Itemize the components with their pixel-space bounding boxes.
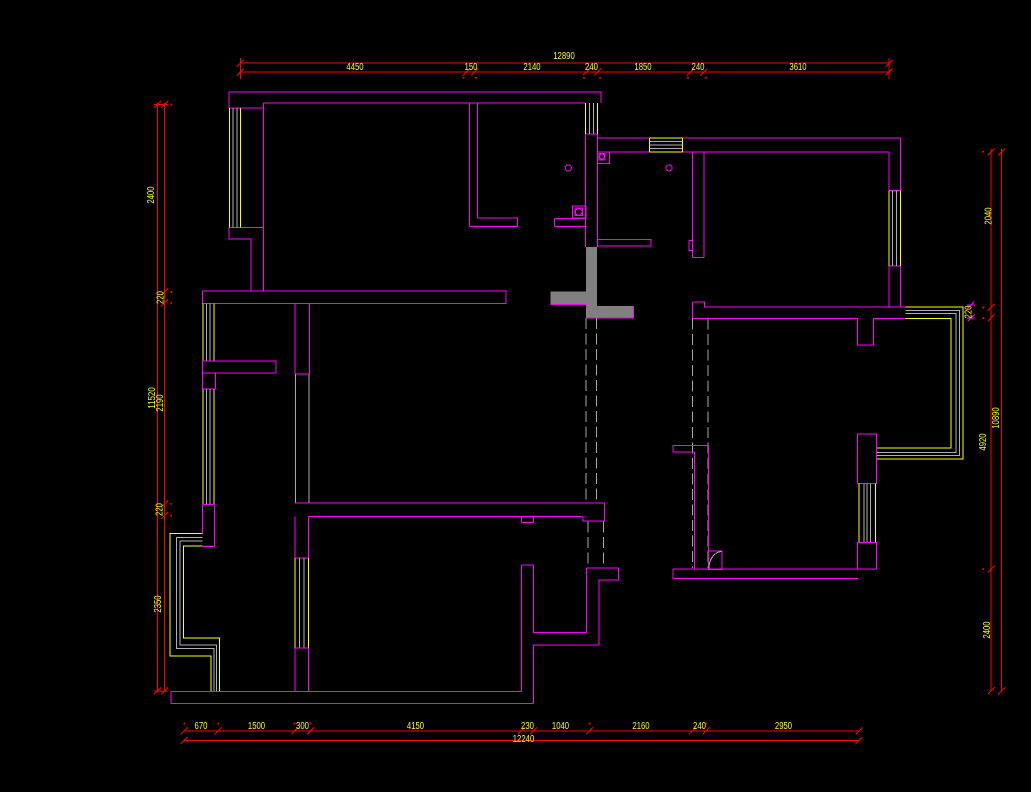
svg-text:150: 150 (465, 62, 478, 73)
svg-text:2950: 2950 (775, 721, 793, 732)
svg-text:2140: 2140 (523, 62, 541, 73)
svg-text:1850: 1850 (634, 62, 652, 73)
svg-text:2190: 2190 (155, 394, 166, 412)
svg-text:220: 220 (155, 503, 166, 516)
svg-text:4450: 4450 (346, 62, 364, 73)
svg-text:2040: 2040 (984, 207, 995, 225)
svg-text:220: 220 (156, 291, 167, 304)
svg-text:2350: 2350 (153, 595, 164, 613)
svg-text:300: 300 (296, 721, 309, 732)
svg-text:240: 240 (692, 62, 705, 73)
svg-text:240: 240 (693, 721, 706, 732)
svg-text:12240: 12240 (513, 734, 535, 745)
svg-text:4920: 4920 (978, 433, 989, 451)
svg-text:240: 240 (585, 62, 598, 73)
svg-text:1040: 1040 (552, 721, 570, 732)
svg-text:4150: 4150 (407, 721, 425, 732)
svg-text:2160: 2160 (632, 721, 650, 732)
svg-text:2400: 2400 (982, 621, 993, 639)
svg-text:2400: 2400 (146, 186, 157, 204)
svg-text:230: 230 (521, 721, 534, 732)
svg-text:3610: 3610 (789, 62, 807, 73)
svg-text:670: 670 (195, 721, 208, 732)
svg-text:220: 220 (964, 305, 975, 318)
svg-text:10890: 10890 (991, 407, 1002, 429)
svg-text:1500: 1500 (248, 721, 266, 732)
svg-text:12890: 12890 (553, 51, 575, 62)
